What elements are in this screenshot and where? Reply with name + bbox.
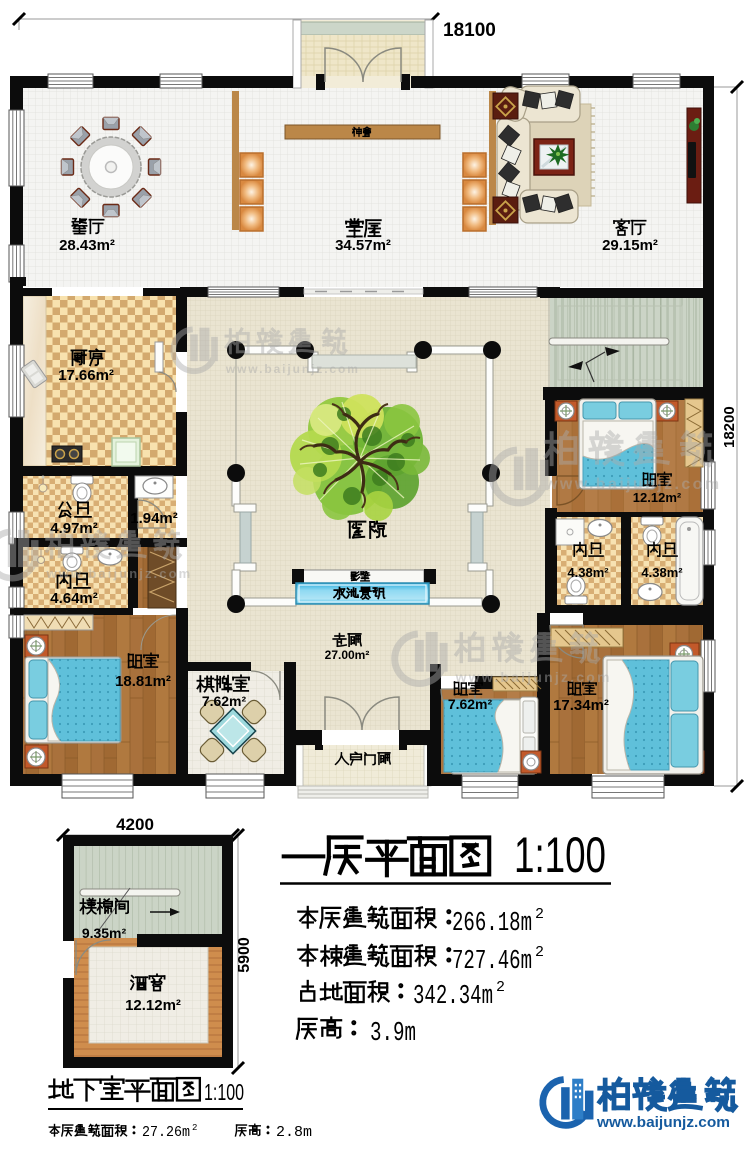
svg-text:18100: 18100 [443,20,496,41]
svg-text:1.94m²: 1.94m² [130,510,178,527]
svg-text:342.34m: 342.34m [413,982,493,1012]
svg-text:266.18m: 266.18m [452,909,532,939]
svg-text:7.62m²: 7.62m² [448,696,493,712]
svg-text:727.46m: 727.46m [452,947,532,977]
svg-text:4.38m²: 4.38m² [641,565,683,580]
svg-text:18.81m²: 18.81m² [115,673,171,690]
svg-text:www.baijunjz.com: www.baijunjz.com [46,566,193,581]
svg-text:29.15m²: 29.15m² [602,237,658,254]
svg-text:2: 2 [535,906,544,923]
svg-text:5900: 5900 [236,937,253,973]
svg-text:2: 2 [496,979,505,996]
svg-text:2: 2 [535,944,544,961]
svg-text:www.baijunjz.com: www.baijunjz.com [596,1114,730,1131]
svg-text:17.66m²: 17.66m² [58,367,114,384]
svg-text:27.26m: 27.26m [142,1124,190,1141]
svg-text:2.8m: 2.8m [276,1124,312,1141]
svg-text:www.baijunjz.com: www.baijunjz.com [455,669,612,685]
svg-text:18200: 18200 [721,406,738,448]
svg-text:12.12m²: 12.12m² [125,997,181,1014]
svg-text:4.38m²: 4.38m² [567,565,609,580]
svg-text:1:100: 1:100 [514,827,606,883]
svg-text:4.64m²: 4.64m² [50,590,98,607]
svg-text:17.34m²: 17.34m² [553,697,609,714]
svg-text:4200: 4200 [116,815,154,834]
svg-text:2: 2 [192,1123,197,1133]
svg-text:7.62m²: 7.62m² [202,693,247,709]
svg-text:27.00m²: 27.00m² [325,648,370,662]
svg-text:3.9m: 3.9m [370,1019,416,1049]
svg-text:1:100: 1:100 [204,1079,244,1105]
svg-text:www.baijunjz.com: www.baijunjz.com [544,476,722,493]
svg-text:28.43m²: 28.43m² [59,237,115,254]
svg-text:34.57m²: 34.57m² [335,237,391,254]
svg-text:www.baijunjz.com: www.baijunjz.com [225,362,360,376]
